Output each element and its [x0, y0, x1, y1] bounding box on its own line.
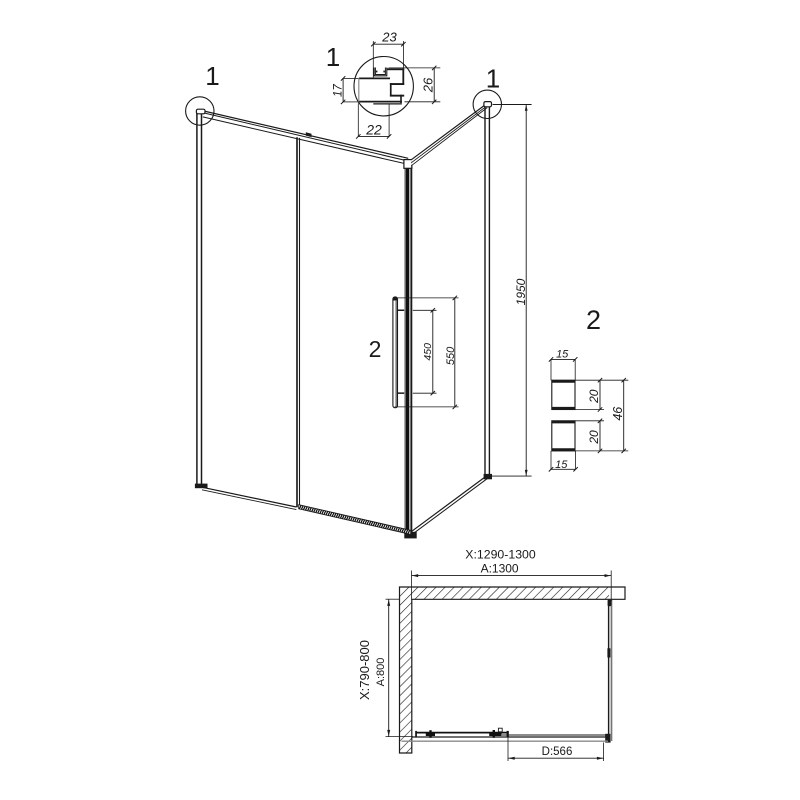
svg-text:23: 23 [381, 30, 397, 45]
svg-text:1950: 1950 [514, 278, 528, 305]
svg-text:26: 26 [420, 77, 435, 93]
svg-text:X:790-800: X:790-800 [357, 640, 372, 700]
svg-text:1: 1 [205, 61, 219, 91]
svg-text:20: 20 [587, 430, 601, 445]
svg-text:2: 2 [586, 305, 601, 335]
svg-text:20: 20 [587, 389, 601, 404]
svg-text:A:1300: A:1300 [481, 562, 519, 576]
svg-text:1: 1 [486, 64, 500, 94]
svg-text:17: 17 [333, 84, 345, 97]
svg-text:550: 550 [445, 346, 457, 365]
svg-text:A:800: A:800 [375, 658, 387, 687]
svg-text:15: 15 [555, 459, 568, 471]
svg-text:450: 450 [422, 343, 434, 361]
svg-text:2: 2 [369, 336, 382, 362]
svg-text:15: 15 [556, 348, 569, 360]
svg-text:X:1290-1300: X:1290-1300 [465, 548, 536, 562]
svg-text:D:566: D:566 [542, 746, 573, 758]
svg-text:46: 46 [611, 407, 625, 421]
svg-text:22: 22 [365, 121, 382, 137]
svg-text:1: 1 [326, 42, 340, 72]
